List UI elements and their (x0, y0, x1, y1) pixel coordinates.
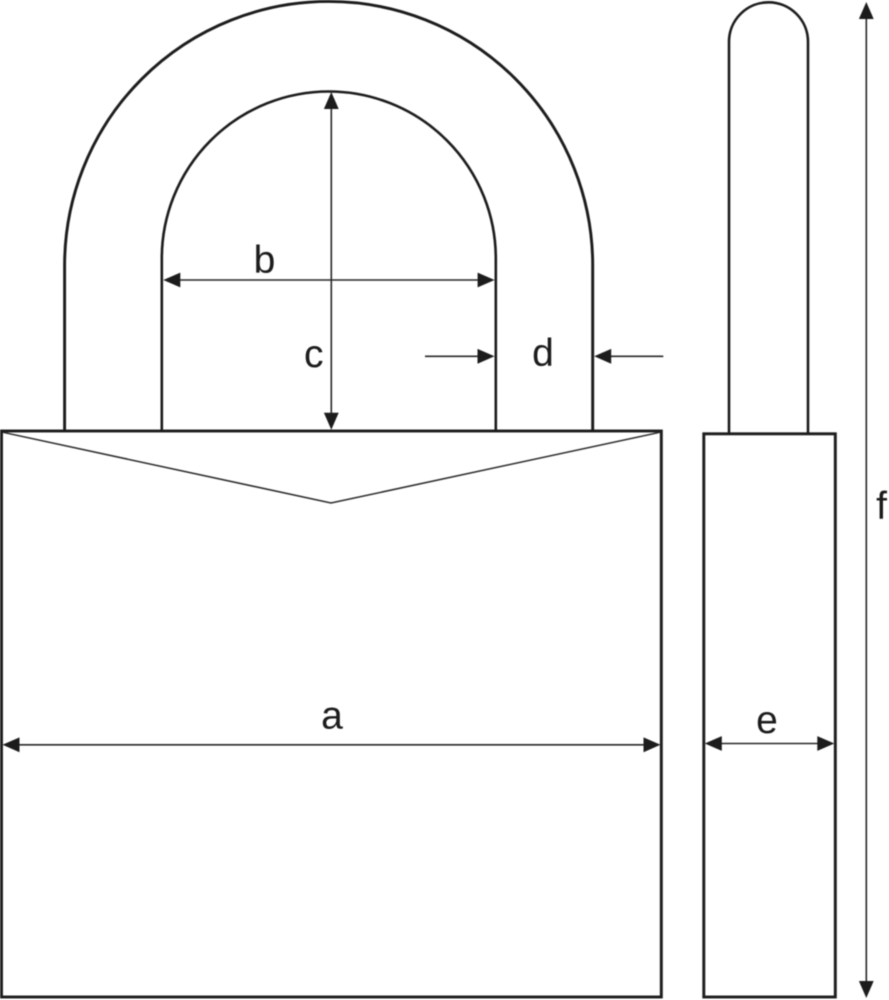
svg-text:a: a (321, 695, 343, 738)
svg-text:f: f (876, 485, 887, 528)
svg-text:c: c (304, 333, 324, 376)
svg-text:e: e (756, 699, 778, 742)
svg-text:d: d (532, 332, 554, 375)
svg-text:b: b (254, 239, 276, 282)
